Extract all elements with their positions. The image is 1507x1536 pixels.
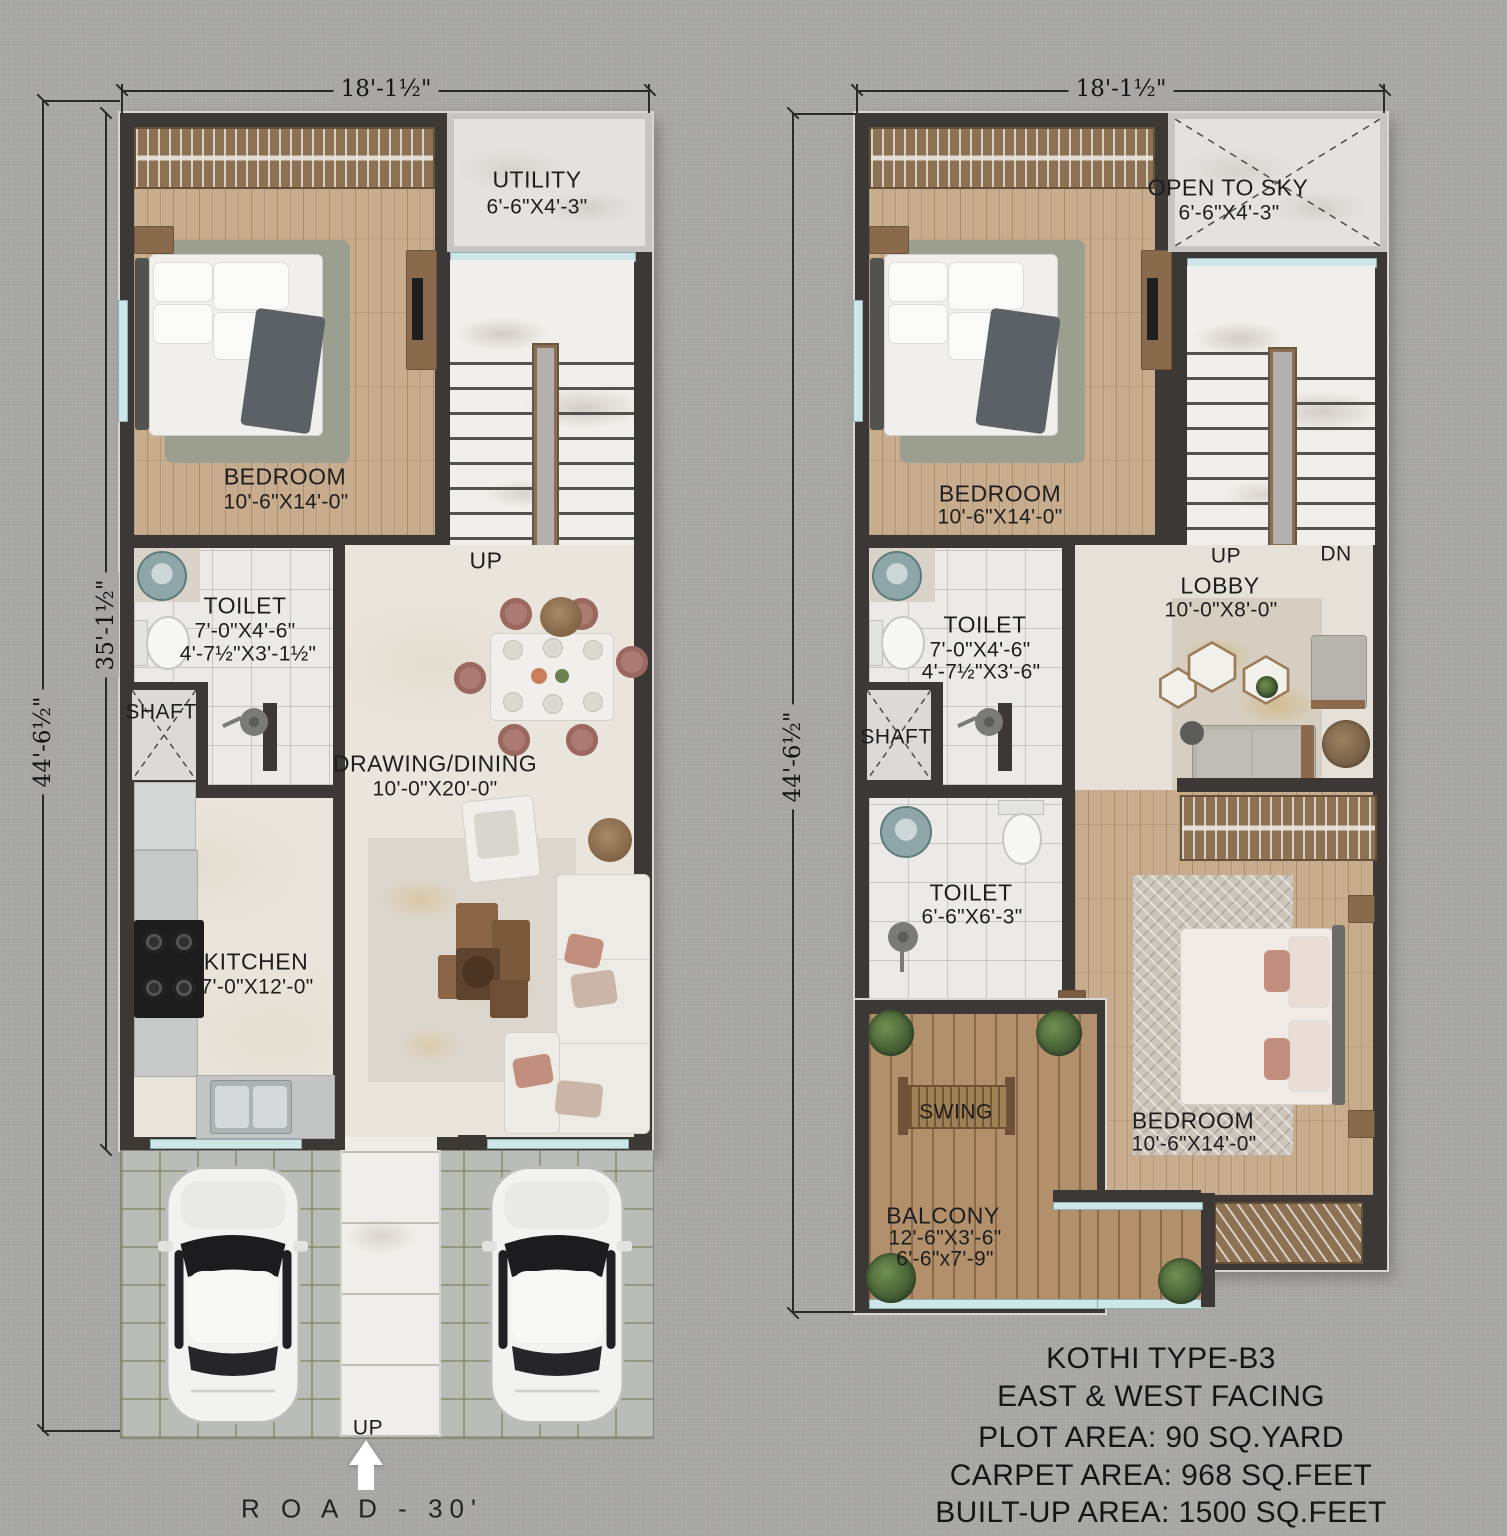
ff-bed-headboard [870,258,884,430]
gf-kitchen-dims: 7'-0"X12'-0" [201,975,314,998]
gf-stairs-railing [532,343,559,550]
ff-bedroom-window [853,300,863,422]
ff-bed2-sidetable [1348,895,1375,923]
gf-sink [210,1080,292,1134]
ff-toilet2-dims: 6'-6"X6'-3" [922,905,1023,928]
ff-bedroom-dims: 10'-6"X14'-0" [938,505,1063,528]
gf-bed-pillow [153,262,213,302]
gf-toilet-dims-b: 4'-7½"X3'-1½" [180,642,317,665]
ff-balcony-plant [868,1010,914,1056]
gf-armchair [461,794,541,883]
ff-lobby-dims: 10'-0"X8'-0" [1165,598,1278,621]
gf-entry-up-label: UP [353,1416,383,1439]
gf-toilet-label: TOILET [203,593,286,618]
gf-bed-headboard [135,258,149,430]
gf-wardrobe [134,127,435,189]
ff-opensky-label: OPEN TO SKY [1148,175,1309,200]
gf-bedroom-label: BEDROOM [224,464,346,489]
ff-toilet2-label: TOILET [929,880,1012,905]
ff-armchair-pillow [1314,622,1340,648]
ff-balcony-plant [1036,1010,1082,1056]
gf-wicker-basket [540,597,582,637]
ff-table-plant [1256,676,1278,698]
gf-dining-chair [566,724,598,756]
ff-bedroom-label: BEDROOM [939,481,1061,506]
gf-drawing-label: DRAWING/DINING [333,751,537,776]
ff-nightstand [869,226,909,254]
ff-wardrobe [869,127,1155,189]
gf-nightstand [134,226,174,254]
ff-witness-44t [792,113,855,115]
gf-dining-table [490,633,614,721]
ff-stairs-railing [1268,347,1297,549]
ff-tv [1147,278,1158,340]
gf-sofa-pillow [570,969,618,1009]
ff-balcony-dims-b: 6'-6"x7'-9" [896,1247,993,1270]
gf-washbasin [137,551,187,601]
gf-entry-opening [345,1137,437,1151]
ff-dim-side: 44'-6½" [780,705,806,810]
ff-armchair-base [1311,700,1365,709]
ff-shower1-head [975,708,1003,736]
ff-wardrobe2-top [1180,795,1377,861]
gf-utility-dims: 6'-6"X4'-3" [487,195,588,218]
ff-wc1-bowl [881,616,925,670]
ff-bed2-headboard [1332,925,1345,1105]
ff-shaft-label: SHAFT [860,725,931,748]
title-line-5: BUILT-UP AREA: 1500 SQ.FEET [935,1495,1387,1531]
ff-bed-pillow [888,262,948,302]
gf-road-label: R O A D - 30' [241,1494,483,1525]
gf-window-stub [458,1135,486,1150]
gf-drawing-window [487,1139,629,1149]
gf-kitchen-window [150,1139,302,1149]
gf-bedroom-dims: 10'-6"X14'-0" [224,490,349,513]
ff-lobby-label: LOBBY [1180,573,1259,598]
ff-bed2-pillow-accent [1264,1038,1290,1080]
ff-stairs-treads-dn [1293,377,1375,545]
gf-toilet-dims-a: 7'-0"X4'-6" [195,619,296,642]
gf-kitchen-label: KITCHEN [204,949,308,974]
ff-dim-top: 18'-1½" [1069,76,1174,102]
gf-bed-pillow [213,262,289,310]
gf-entry-walkway [340,1150,441,1437]
gf-sofa-pillow [554,1080,603,1119]
gf-bed-pillow [153,304,213,344]
ff-wc2-bowl [1002,813,1042,865]
ff-bed-pillow [948,262,1024,310]
ff-bed2-pillow [1288,936,1330,1008]
ff-stairs-treads-up [1187,352,1268,542]
gf-drawing-dims: 10'-0"X20'-0" [373,777,498,800]
gf-fridge [134,782,196,850]
gf-shower-head [240,708,268,736]
gf-dining-chair [500,598,532,630]
gf-shaft-label: SHAFT [125,700,196,723]
ff-toilet1-label: TOILET [943,612,1026,637]
gf-car [158,1162,308,1428]
ff-jute-rug [1322,720,1370,768]
ff-washbasin1 [872,551,922,601]
ff-swing-arm [898,1077,908,1135]
ff-swing-label: SWING [919,1100,993,1123]
ff-washbasin2 [880,806,932,858]
ff-balcony-plant [1158,1258,1204,1304]
gf-pouf [588,818,632,862]
ff-toilet1-dims-b: 4'-7½"X3'-6" [922,660,1041,683]
gf-dining-chair [616,646,648,678]
ff-balcony-wall-stub [1201,1193,1215,1307]
gf-stove [134,920,204,1018]
title-line-3: PLOT AREA: 90 SQ.YARD [978,1420,1344,1456]
ff-bedroom2-balcony-window [1053,1202,1203,1210]
ff-bedroom2-dims: 10'-6"X14'-0" [1132,1132,1257,1155]
ff-toilet1-dims-a: 7'-0"X4'-6" [930,638,1031,661]
gf-witness-44t [42,100,120,102]
gf-dim-side-outer: 44'-6½" [30,690,56,795]
ff-stairs-dn-label: DN [1320,542,1351,565]
gf-utility-label: UTILITY [492,167,581,192]
ff-lobby-sofa [1192,725,1316,785]
ff-balcony-dims-a: 12'-6"X3'-6" [889,1226,1002,1249]
gf-witness-44b [42,1430,120,1432]
ff-shower2-arm [900,950,904,972]
ff-balcony-label: BALCONY [886,1203,999,1228]
gf-bedroom-window [118,300,128,422]
gf-car [482,1162,632,1428]
ff-shower2-head [888,922,918,952]
gf-dim-top: 18'-1½" [334,76,439,102]
ff-opensky-dims: 6'-6"X4'-3" [1179,201,1280,224]
title-line-2: EAST & WEST FACING [997,1379,1325,1415]
title-line-4: CARPET AREA: 968 SQ.FEET [950,1458,1373,1494]
gf-coffee-table [490,980,528,1018]
gf-tv [412,278,423,340]
ff-sofa-pillow [1180,721,1204,745]
gf-dim-side-inner: 35'-1½" [93,573,119,678]
ff-bed2-sidetable [1348,1110,1375,1138]
ff-bed2-pillow [1288,1020,1330,1092]
ff-sofa-arm [1301,725,1314,783]
ff-bed-pillow [888,304,948,344]
ff-bedroom2-balcony-wall [1053,1190,1201,1202]
ff-bed2-pillow-accent [1264,950,1290,992]
ff-wardrobe2-bottom [1214,1202,1363,1264]
ff-bedroom2-label: BEDROOM [1132,1108,1254,1133]
title-line-1: KOTHI TYPE-B3 [1046,1341,1276,1377]
ff-stairs-up-label: UP [1211,544,1241,567]
ff-witness-44b [792,1311,855,1313]
ff-balcony-rail [869,1299,1099,1309]
ff-lobby-bedroom2-wall [1177,778,1387,792]
gf-entry-arrow-icon [349,1440,383,1465]
gf-stairs-up-label: UP [470,548,503,573]
gf-entry-arrow-stem [358,1464,374,1490]
gf-dining-chair [454,662,486,694]
